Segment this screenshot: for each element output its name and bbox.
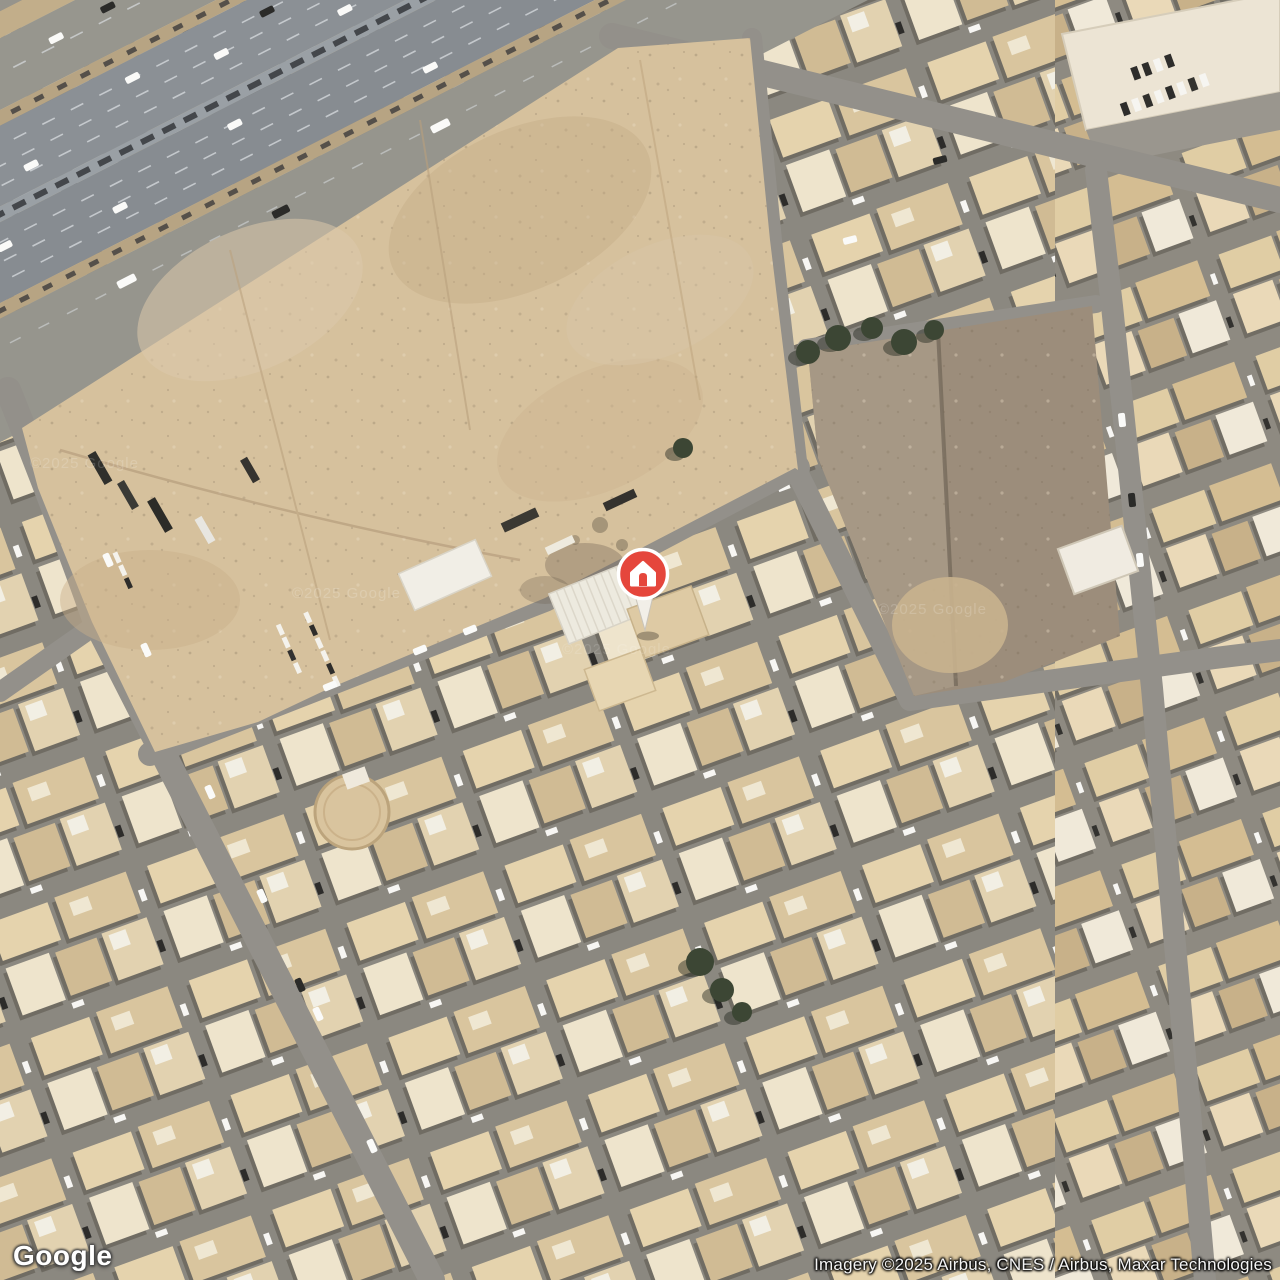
- imagery-attribution: Imagery ©2025 Airbus, CNES / Airbus, Max…: [814, 1255, 1272, 1275]
- map-watermark: ©2025 Google: [30, 455, 139, 472]
- map-watermark: ©2025 Google: [878, 601, 987, 618]
- map-canvas[interactable]: ©2025 Google ©2025 Google ©2025 Google ©…: [0, 0, 1280, 1280]
- map-watermark: ©2025 Google: [562, 641, 671, 658]
- satellite-imagery: ©2025 Google ©2025 Google ©2025 Google ©…: [0, 0, 1280, 1280]
- google-logo[interactable]: Google: [13, 1240, 112, 1272]
- map-watermark: ©2025 Google: [292, 585, 401, 602]
- house-door: [639, 573, 647, 586]
